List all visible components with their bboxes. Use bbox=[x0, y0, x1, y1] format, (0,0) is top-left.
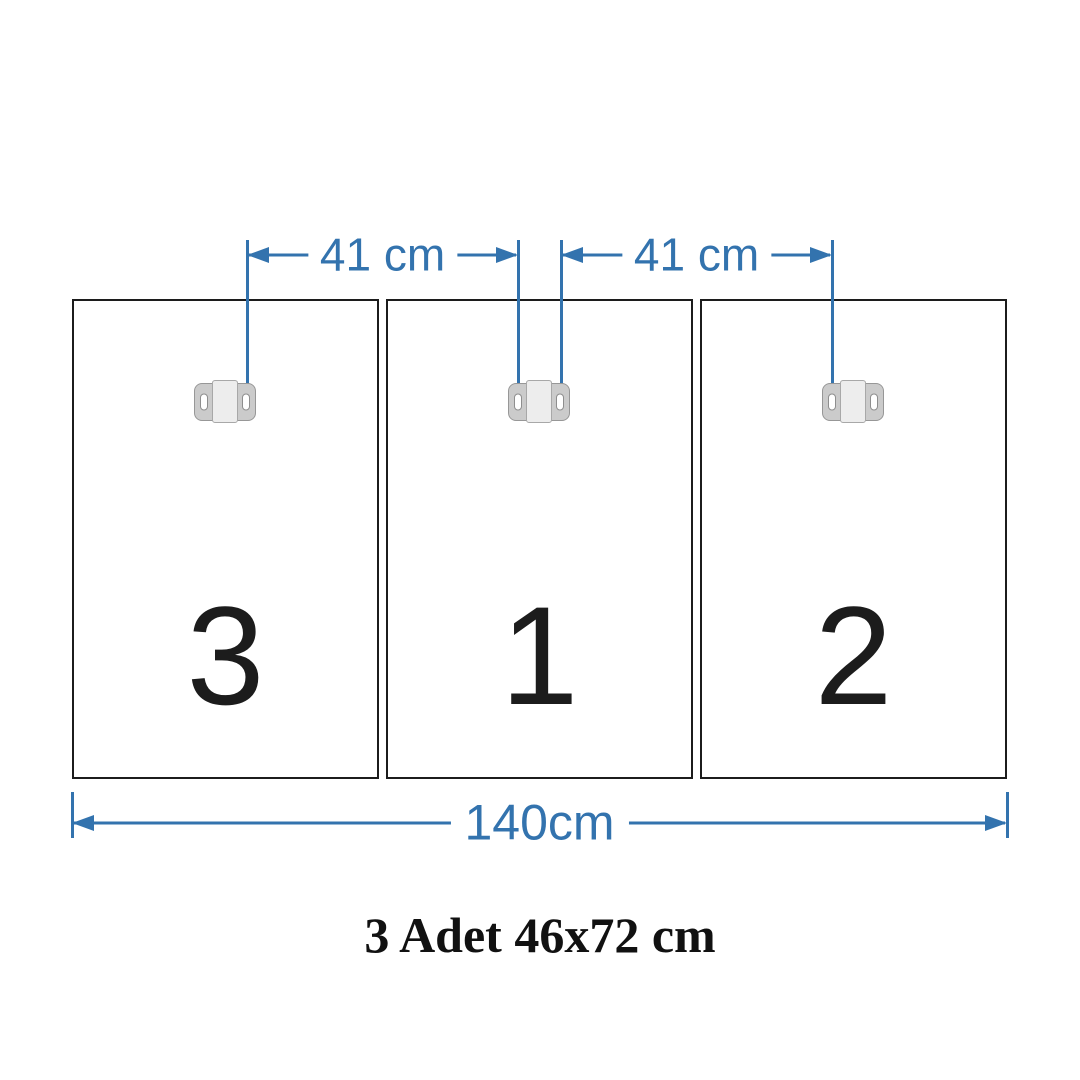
bracket-screw-slot bbox=[200, 394, 208, 411]
top-dimension-left: 41 cm bbox=[247, 227, 518, 283]
dimension-label: 140cm bbox=[450, 796, 628, 851]
bracket-center-plate bbox=[526, 380, 552, 423]
top-dimension-right: 41 cm bbox=[561, 227, 832, 283]
bracket-center-plate bbox=[840, 380, 866, 423]
panel: 3 bbox=[72, 299, 379, 779]
bracket-screw-slot bbox=[556, 394, 564, 411]
diagram-canvas: 41 cm 41 cm 3 1 2 bbox=[0, 0, 1080, 1080]
panel: 2 bbox=[700, 299, 1007, 779]
bracket-screw-slot bbox=[242, 394, 250, 411]
size-caption: 3 Adet 46x72 cm bbox=[0, 903, 1080, 967]
arrow-right-icon bbox=[496, 247, 518, 263]
dimension-label: 41 cm bbox=[308, 230, 457, 281]
bottom-dimension: 140cm bbox=[72, 795, 1007, 851]
arrow-right-icon bbox=[985, 815, 1007, 831]
mounting-bracket-icon bbox=[822, 383, 884, 421]
panel: 1 bbox=[386, 299, 693, 779]
arrow-right-icon bbox=[810, 247, 832, 263]
bracket-screw-slot bbox=[828, 394, 836, 411]
arrow-left-icon bbox=[561, 247, 583, 263]
mounting-bracket-icon bbox=[508, 383, 570, 421]
bracket-screw-slot bbox=[870, 394, 878, 411]
panel-number: 3 bbox=[74, 586, 377, 726]
bracket-screw-slot bbox=[514, 394, 522, 411]
dimension-label: 41 cm bbox=[622, 230, 771, 281]
arrow-left-icon bbox=[247, 247, 269, 263]
panel-number: 2 bbox=[702, 586, 1005, 726]
panel-number: 1 bbox=[388, 586, 691, 726]
bracket-center-plate bbox=[212, 380, 238, 423]
mounting-bracket-icon bbox=[194, 383, 256, 421]
arrow-left-icon bbox=[72, 815, 94, 831]
